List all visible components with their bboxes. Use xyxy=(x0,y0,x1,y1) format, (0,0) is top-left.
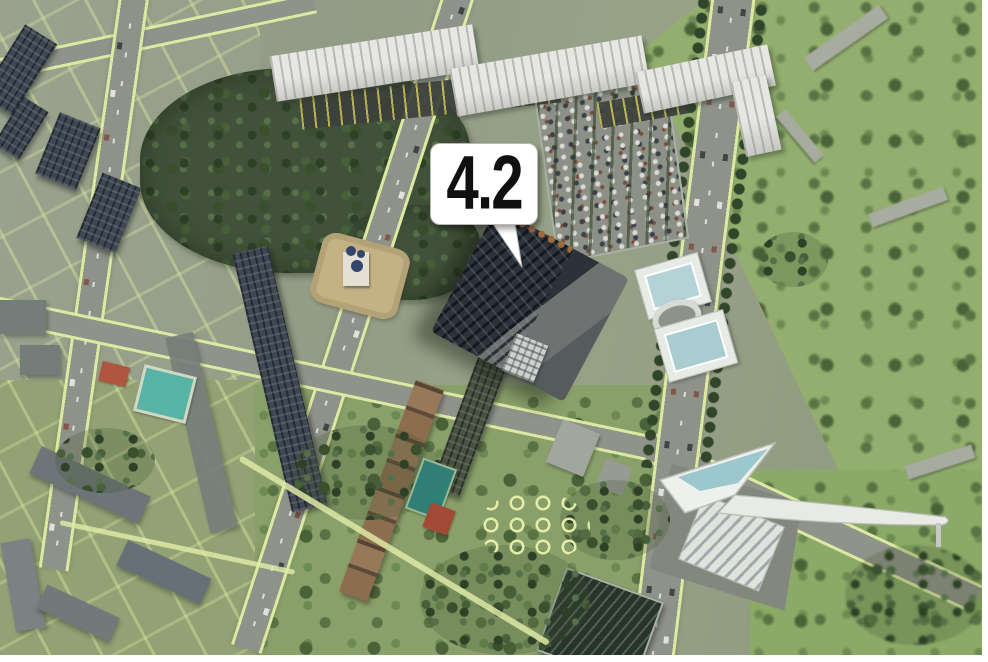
glass-roof xyxy=(664,319,729,373)
marker-tail xyxy=(487,221,527,269)
canopy-blade xyxy=(718,495,948,525)
church-dome xyxy=(346,246,356,256)
tree-cluster-2 xyxy=(420,545,590,655)
block-west-2 xyxy=(20,345,60,375)
playground xyxy=(478,492,590,562)
tree-cluster-3 xyxy=(55,428,155,493)
tree-cluster-6 xyxy=(758,232,828,287)
block-west-1 xyxy=(0,300,46,334)
church xyxy=(343,252,369,286)
aerial-render-photo: 4.2 xyxy=(0,0,982,655)
church-dome xyxy=(357,250,365,258)
canopy-pylon xyxy=(936,523,941,547)
tree-cluster-5 xyxy=(845,545,982,645)
church-dome xyxy=(351,260,363,272)
screenshot-root: 4.2 xyxy=(0,0,988,662)
marker-bubble[interactable]: 4.2 xyxy=(430,143,538,225)
marker-label: 4.2 xyxy=(446,146,521,222)
